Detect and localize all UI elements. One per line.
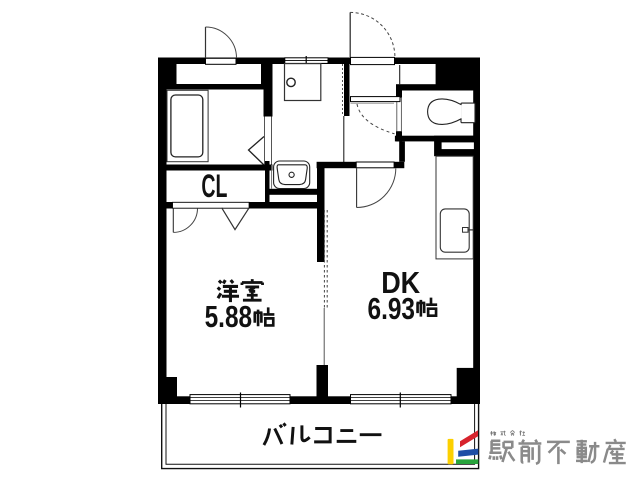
svg-text:5.88: 5.88 [205, 299, 253, 334]
svg-text:CL: CL [201, 168, 227, 204]
svg-text:6.93: 6.93 [368, 291, 416, 326]
